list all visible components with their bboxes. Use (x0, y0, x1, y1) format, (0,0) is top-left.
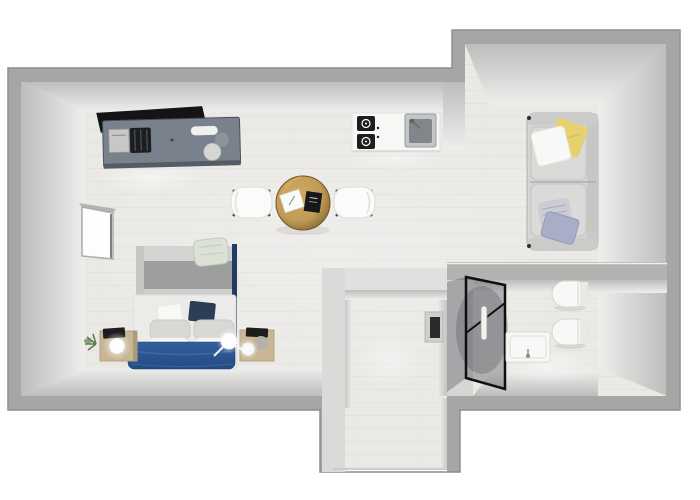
window (79, 203, 116, 259)
printer-slit-1 (135, 130, 136, 151)
toilet (552, 281, 588, 311)
corridor-north-wall-face (333, 290, 447, 300)
sofa-foot-1 (527, 116, 531, 120)
printer-slit-2 (141, 130, 142, 151)
corridor-light-pool (355, 332, 425, 388)
nightstand-black-slab (246, 327, 268, 337)
bidet-tank (580, 320, 588, 344)
desk-tray (191, 126, 218, 136)
plant-leaves (84, 339, 92, 344)
laptop (109, 129, 130, 153)
wall-left (8, 68, 21, 410)
wall-right (666, 30, 680, 410)
wall-top-extension (452, 30, 680, 44)
kitchen (352, 113, 440, 152)
shower-handle (481, 306, 487, 340)
floorplan-render (0, 0, 700, 500)
cooktop-knob-1 (377, 127, 379, 129)
cabinet-band-mid (136, 261, 236, 289)
sink-faucet-base (410, 119, 414, 123)
corridor-west-wall-face (345, 300, 352, 408)
dining-chair-left (231, 187, 272, 218)
burner-1-dot (365, 123, 367, 125)
nightstand-side (133, 331, 137, 361)
lamp-glow-right (237, 338, 259, 360)
toilet-tank (580, 282, 588, 306)
floorplan-svg (0, 0, 700, 500)
right-wall-face (598, 44, 667, 396)
niche-panel (430, 317, 440, 338)
top-wall-face (21, 82, 452, 112)
chair-seat (231, 187, 272, 218)
corridor-north-wall (333, 268, 447, 290)
wall-bottom-bathroom (460, 396, 680, 410)
printer-slit-3 (147, 130, 148, 151)
wall-bottom-main (8, 396, 345, 410)
kitchen-sink (405, 114, 436, 147)
window-glass (82, 207, 113, 259)
wall-vestibule-right (447, 396, 460, 472)
pillow-gray-left (150, 320, 190, 340)
lounge-bath-divider (447, 262, 667, 280)
pillow-shape (530, 125, 571, 166)
dining-chair-right (334, 187, 375, 218)
wall-niche (425, 312, 443, 342)
burner-2-dot (365, 141, 367, 143)
corridor-west-wall (322, 268, 345, 472)
wall-top-main (8, 68, 465, 82)
desk-bowl-light (204, 143, 221, 160)
bidet (552, 319, 588, 349)
cooktop-knob-2 (377, 136, 379, 138)
lamp-glow-left (103, 332, 131, 360)
vestibule-right-face (440, 398, 447, 468)
kitchen-wall-face (443, 82, 465, 150)
left-wall-face (21, 82, 85, 396)
bathroom-sink (506, 332, 550, 362)
pillow-white (530, 125, 571, 166)
draped-blanket (193, 237, 230, 266)
sofa-foot-2 (527, 244, 531, 248)
blanket-cloth (193, 237, 230, 266)
lounge (527, 113, 598, 250)
black-book (304, 191, 323, 213)
